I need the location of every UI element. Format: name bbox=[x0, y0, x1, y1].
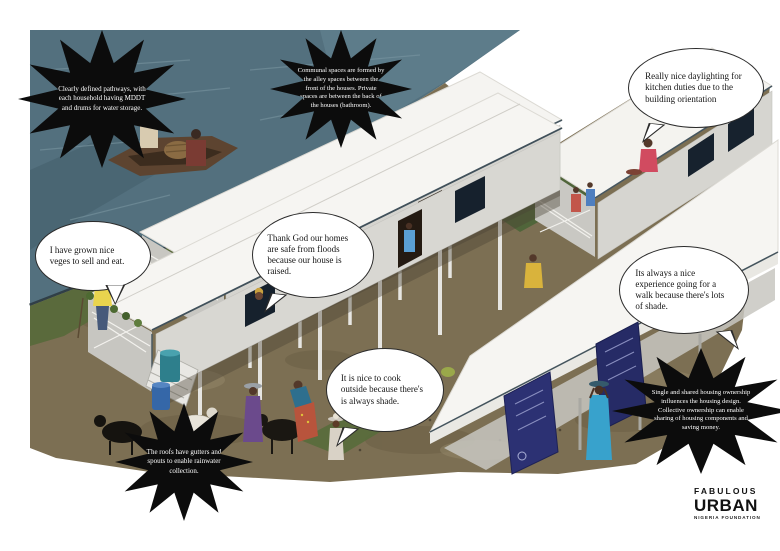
speech-bubble-tail bbox=[642, 123, 668, 143]
speech-bubble-cook: It is nice to cook outside because there… bbox=[326, 348, 444, 432]
speech-bubble-tail bbox=[102, 285, 128, 305]
speech-bubble-daylighting: Really nice daylighting for kitchen duti… bbox=[628, 48, 764, 128]
speech-bubble-walk-text: Its always a nice experience going for a… bbox=[635, 268, 732, 313]
fabulous-urban-logo: FABULOUS URBAN NIGERIA FOUNDATION bbox=[694, 487, 774, 520]
speech-bubble-tail bbox=[264, 293, 290, 313]
speech-bubble-floods: Thank God our homes are safe from floods… bbox=[252, 212, 374, 298]
logo-line-urban: URBAN bbox=[694, 497, 774, 514]
speech-bubble-body: It is nice to cook outside because there… bbox=[326, 348, 444, 432]
speech-bubble-floods-text: Thank God our homes are safe from floods… bbox=[267, 233, 358, 278]
starburst-ownership-text: Single and shared housing ownership infl… bbox=[648, 389, 755, 433]
starburst-roofs-text: The roofs have gutters and spouts to ena… bbox=[144, 448, 224, 476]
speech-bubble-tail bbox=[336, 427, 362, 447]
starburst-communal-text: Communal spaces are formed by the alley … bbox=[297, 67, 385, 111]
speech-bubble-walk: Its always a nice experience going for a… bbox=[619, 246, 749, 334]
speech-bubble-body: Really nice daylighting for kitchen duti… bbox=[628, 48, 764, 128]
speech-bubble-body: Thank God our homes are safe from floods… bbox=[252, 212, 374, 298]
starburst-pathways-text: Clearly defined pathways, with each hous… bbox=[53, 85, 150, 113]
speech-bubble-veges: I have grown nice veges to sell and eat. bbox=[35, 221, 151, 291]
speech-bubble-body: Its always a nice experience going for a… bbox=[619, 246, 749, 334]
speech-bubble-tail bbox=[713, 330, 739, 350]
poster-page: Clearly defined pathways, with each hous… bbox=[0, 0, 780, 551]
speech-bubble-body: I have grown nice veges to sell and eat. bbox=[35, 221, 151, 291]
speech-bubble-cook-text: It is nice to cook outside because there… bbox=[341, 373, 429, 407]
speech-bubble-daylighting-text: Really nice daylighting for kitchen duti… bbox=[645, 71, 747, 105]
logo-line-nigeria-foundation: NIGERIA FOUNDATION bbox=[694, 516, 774, 521]
speech-bubble-veges-text: I have grown nice veges to sell and eat. bbox=[50, 245, 137, 268]
logo-line-fabulous: FABULOUS bbox=[694, 487, 774, 496]
